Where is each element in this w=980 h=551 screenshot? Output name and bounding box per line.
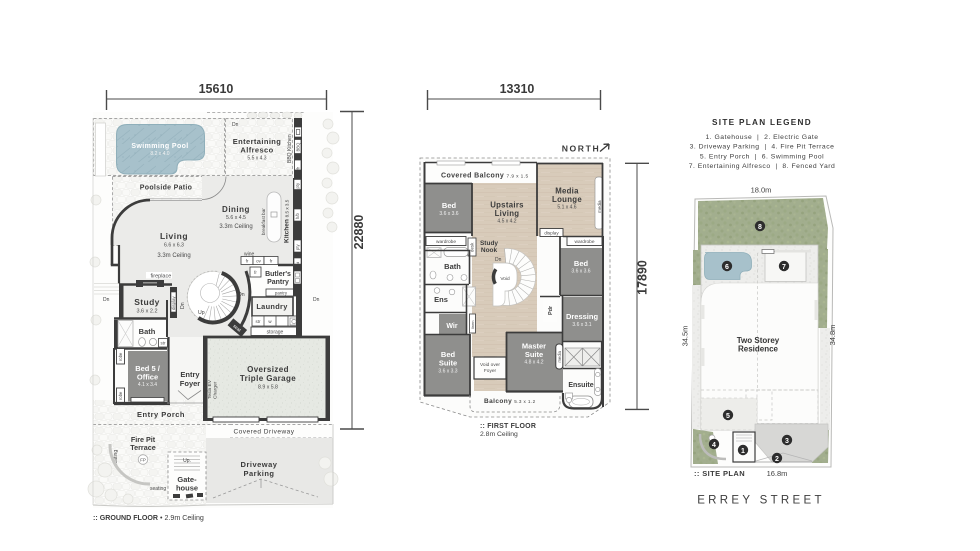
svg-text:Dressing: Dressing xyxy=(566,312,599,321)
svg-text:Ensuite: Ensuite xyxy=(568,382,593,389)
svg-text:robe: robe xyxy=(118,352,123,361)
svg-text:Foyer: Foyer xyxy=(180,379,201,388)
svg-text:Parking: Parking xyxy=(243,469,274,478)
svg-text:Dn: Dn xyxy=(495,257,502,263)
svg-text:Laundry: Laundry xyxy=(256,302,288,311)
svg-text:d: d xyxy=(295,262,300,264)
svg-text:Office: Office xyxy=(137,373,158,382)
svg-text:NORTH: NORTH xyxy=(562,144,601,154)
svg-text:3.6 x 3.6: 3.6 x 3.6 xyxy=(571,269,590,275)
svg-text:Entry: Entry xyxy=(180,370,200,379)
svg-text:5.5 x 4.3: 5.5 x 4.3 xyxy=(247,156,266,162)
svg-text:Pantry: Pantry xyxy=(267,279,289,286)
svg-text:8.9 x 5.8: 8.9 x 5.8 xyxy=(258,385,278,391)
svg-text:display: display xyxy=(171,296,176,310)
svg-text:3: 3 xyxy=(785,438,789,445)
svg-text:Driveway: Driveway xyxy=(241,460,278,469)
svg-text:3.6 x 3.6: 3.6 x 3.6 xyxy=(439,211,458,217)
svg-text:Ens: Ens xyxy=(434,295,448,304)
svg-text:3.6 x 2.2: 3.6 x 2.2 xyxy=(136,309,157,315)
svg-text:2.8m Ceiling: 2.8m Ceiling xyxy=(480,431,518,438)
svg-text:BBQ Kitchen: BBQ Kitchen xyxy=(287,134,293,163)
svg-text:Oversized: Oversized xyxy=(247,365,289,374)
svg-text:seating: seating xyxy=(150,486,166,492)
svg-text:7: 7 xyxy=(782,264,786,271)
svg-text::: GROUND FLOOR • 2.9m Ceiling: :: GROUND FLOOR • 2.9m Ceiling xyxy=(93,514,204,522)
svg-text:Living: Living xyxy=(160,231,188,241)
svg-text:Up.: Up. xyxy=(183,458,191,464)
svg-text:15610: 15610 xyxy=(199,82,234,96)
svg-text:Bath: Bath xyxy=(139,327,156,336)
svg-text:Dn: Dn xyxy=(238,292,245,298)
svg-text:3. Driveway Parking | 4. Fir: 3. Driveway Parking | 4. Fire Pit Terrac… xyxy=(690,144,835,151)
svg-text:Covered Balcony 7.9 x 1.5: Covered Balcony 7.9 x 1.5 xyxy=(441,173,529,180)
svg-text:Up: Up xyxy=(198,310,205,316)
svg-text:Void: Void xyxy=(500,276,510,282)
svg-text:Charger: Charger xyxy=(213,381,219,399)
svg-text:Living: Living xyxy=(495,209,520,218)
svg-text:5: 5 xyxy=(726,413,730,420)
svg-text:house: house xyxy=(176,484,198,493)
svg-text:Balcony 5.3 x 1.2: Balcony 5.3 x 1.2 xyxy=(484,398,536,405)
svg-text:ERREY STREET: ERREY STREET xyxy=(697,495,825,507)
svg-text:Dn: Dn xyxy=(313,297,320,303)
svg-text:linen: linen xyxy=(470,321,475,329)
svg-text:Nook: Nook xyxy=(481,247,498,254)
svg-text:34.5m: 34.5m xyxy=(681,326,690,347)
svg-text:display: display xyxy=(544,231,559,236)
svg-text:media: media xyxy=(597,200,602,213)
svg-text:wardrobe: wardrobe xyxy=(436,239,456,245)
svg-text::: SITE PLAN: :: SITE PLAN xyxy=(694,469,745,478)
svg-text:pty: pty xyxy=(295,244,300,250)
svg-text:wardrobe: wardrobe xyxy=(575,239,595,245)
svg-text:4.8 x 4.2: 4.8 x 4.2 xyxy=(524,360,543,366)
svg-text:Void over: Void over xyxy=(480,362,500,368)
svg-text:Swimming Pool: Swimming Pool xyxy=(131,143,188,150)
svg-text:h/b: h/b xyxy=(295,213,300,219)
svg-text:Dn: Dn xyxy=(232,122,239,128)
svg-text:13310: 13310 xyxy=(500,82,535,96)
svg-text:Tesla EV: Tesla EV xyxy=(207,379,213,399)
svg-text:6.6 x 6.3: 6.6 x 6.3 xyxy=(164,243,184,249)
svg-text:Pdr: Pdr xyxy=(548,305,554,315)
svg-text:SITE PLAN LEGEND: SITE PLAN LEGEND xyxy=(712,118,812,127)
svg-text:Residence: Residence xyxy=(738,345,779,354)
svg-text:Covered Driveway: Covered Driveway xyxy=(233,429,294,436)
svg-text:4: 4 xyxy=(712,442,716,449)
svg-text:Alfresco: Alfresco xyxy=(240,146,273,155)
svg-text:Study: Study xyxy=(134,297,160,307)
svg-text:3.3m Ceiling: 3.3m Ceiling xyxy=(219,224,252,230)
svg-text:34.8m: 34.8m xyxy=(828,325,837,346)
svg-text:3.6 x 3.3: 3.6 x 3.3 xyxy=(438,369,457,375)
svg-text:media: media xyxy=(557,350,562,362)
svg-text:1. Gatehouse | 2. Electric G: 1. Gatehouse | 2. Electric Gate xyxy=(705,134,818,141)
svg-text:3.6 x 3.1: 3.6 x 3.1 xyxy=(572,322,591,328)
svg-text:Bath: Bath xyxy=(444,262,461,271)
svg-text:pantry: pantry xyxy=(275,291,288,296)
svg-text:ov: ov xyxy=(256,259,261,264)
svg-text:6: 6 xyxy=(725,264,729,271)
svg-text:5.6 x 4.5: 5.6 x 4.5 xyxy=(226,215,246,221)
svg-text:22880: 22880 xyxy=(352,215,366,250)
svg-text:17890: 17890 xyxy=(636,260,650,295)
svg-text::: FIRST FLOOR: :: FIRST FLOOR xyxy=(480,423,536,430)
svg-text:Dn: Dn xyxy=(180,302,186,309)
svg-text:8.2 x 4.0: 8.2 x 4.0 xyxy=(150,151,169,157)
svg-text:FP: FP xyxy=(140,458,146,463)
svg-text:4.1 x 3.4: 4.1 x 3.4 xyxy=(138,382,157,388)
svg-text:Suite: Suite xyxy=(439,359,457,368)
svg-text:Kitchen 8.5 x 3.5: Kitchen 8.5 x 3.5 xyxy=(284,199,291,243)
svg-text:7. Entertaining Alfresco | 8: 7. Entertaining Alfresco | 8. Fenced Yar… xyxy=(689,163,836,170)
svg-text:pty: pty xyxy=(295,182,300,188)
svg-text:Triple Garage: Triple Garage xyxy=(240,374,296,383)
svg-text:Foyer: Foyer xyxy=(484,368,497,374)
svg-text:Study: Study xyxy=(480,240,498,247)
svg-text:Butler's: Butler's xyxy=(265,271,291,278)
svg-text:3.3m Ceiling: 3.3m Ceiling xyxy=(157,253,190,259)
svg-text:4.5 x 4.2: 4.5 x 4.2 xyxy=(497,219,516,225)
svg-text:16.8m: 16.8m xyxy=(767,469,788,478)
svg-text:8: 8 xyxy=(758,224,762,231)
svg-text:Lounge: Lounge xyxy=(552,195,582,204)
svg-text:5. Entry Porch | 6. Swimming: 5. Entry Porch | 6. Swimming Pool xyxy=(700,153,824,160)
svg-text:breakfast bar: breakfast bar xyxy=(261,208,266,235)
svg-text:BBQ: BBQ xyxy=(295,142,300,152)
svg-text:Wir: Wir xyxy=(446,323,457,330)
svg-text:Bed: Bed xyxy=(442,201,457,210)
svg-text:Terrace: Terrace xyxy=(130,443,155,452)
svg-text:Entry Porch: Entry Porch xyxy=(137,410,185,419)
svg-text:Dn: Dn xyxy=(103,297,110,303)
svg-text:str: str xyxy=(256,319,261,324)
svg-text:Dining: Dining xyxy=(222,205,250,214)
svg-text:1: 1 xyxy=(741,448,745,455)
svg-text:Bed: Bed xyxy=(574,259,589,268)
svg-text:robe: robe xyxy=(118,391,123,400)
svg-text:storage: storage xyxy=(267,330,284,336)
svg-text:str: str xyxy=(161,341,166,346)
svg-text:fireplace: fireplace xyxy=(151,274,172,280)
svg-text:Suite: Suite xyxy=(525,350,543,359)
svg-text:5.1 x 4.6: 5.1 x 4.6 xyxy=(557,205,576,211)
svg-text:Poolside Patio: Poolside Patio xyxy=(140,185,192,192)
svg-text:18.0m: 18.0m xyxy=(751,186,772,195)
svg-text:2: 2 xyxy=(775,456,779,463)
